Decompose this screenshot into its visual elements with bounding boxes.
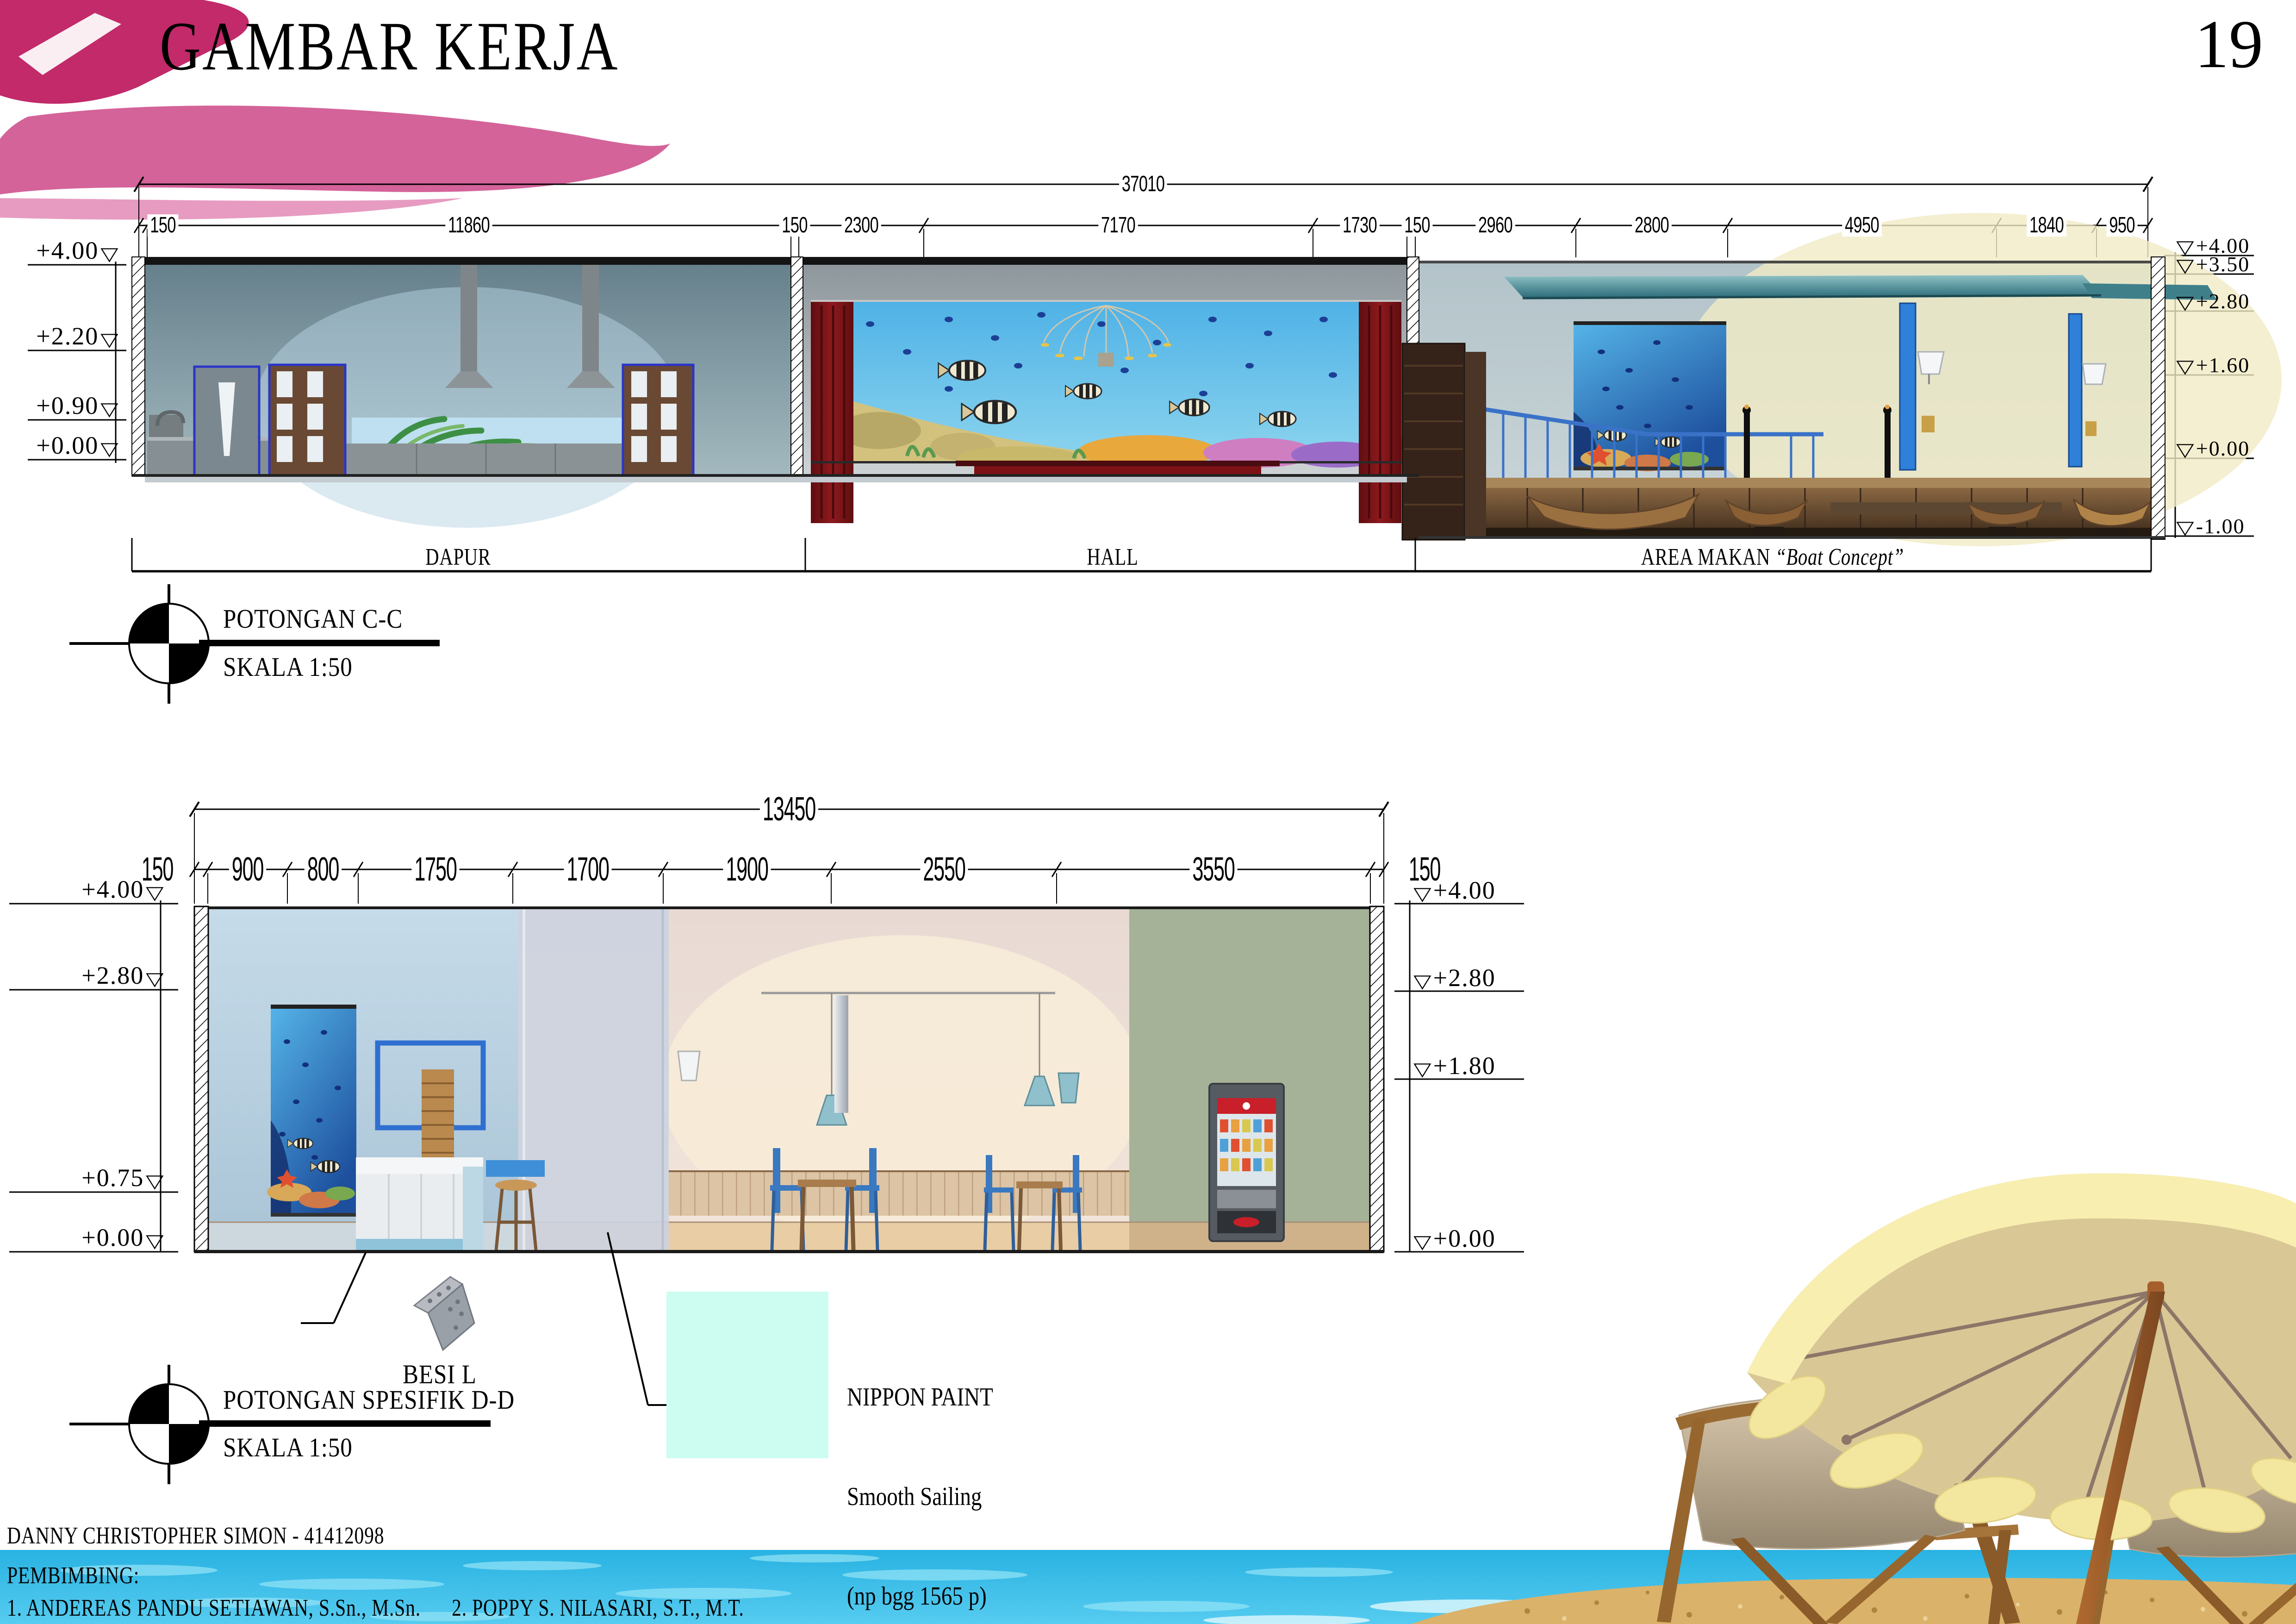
dd-dim-4: 1700 bbox=[564, 853, 611, 886]
dd-elev-left-1: +2.80▽ bbox=[9, 961, 162, 990]
cc-dim-3: 2300 bbox=[841, 214, 881, 237]
elev-value: +0.00 bbox=[36, 431, 99, 460]
paint-leader-line bbox=[608, 1232, 675, 1405]
cc-elev-right-5: ▽-1.00 bbox=[2178, 514, 2245, 538]
dd-elev-left-3: +0.00▽ bbox=[9, 1223, 162, 1252]
cc-kitchen-render bbox=[145, 265, 791, 528]
elev-value: +1.60 bbox=[2196, 353, 2250, 377]
besi-l-label: BESI L bbox=[403, 1361, 477, 1388]
elev-value: +4.00 bbox=[36, 236, 99, 265]
elev-value: +2.20 bbox=[36, 322, 99, 350]
cc-total-dim: 37010 bbox=[1119, 173, 1167, 195]
dd-dim-1: 900 bbox=[229, 853, 266, 886]
elevation-triangle-icon: ▽ bbox=[146, 882, 163, 904]
dd-caption-title: POTONGAN SPESIFIK D-D bbox=[223, 1387, 515, 1413]
dd-dim-3: 1750 bbox=[411, 853, 459, 886]
dd-dim-7: 3550 bbox=[1189, 853, 1237, 886]
elev-value: +0.00 bbox=[2196, 436, 2250, 461]
dd-aquarium-poster bbox=[267, 1005, 356, 1217]
dd-elev-left-2: +0.75▽ bbox=[9, 1163, 162, 1192]
cc-dim-9: 4950 bbox=[1842, 214, 1882, 237]
cc-hall-render bbox=[803, 265, 1425, 523]
angle-iron-icon bbox=[414, 1277, 474, 1350]
dd-right-wall bbox=[1370, 906, 1384, 1252]
elevation-triangle-icon: ▽ bbox=[2176, 356, 2194, 377]
cc-dim-0: 150 bbox=[147, 214, 178, 237]
supervisor-names: 1. ANDEREAS PANDU SETIAWAN, S.Sn., M.Sn.… bbox=[7, 1596, 744, 1620]
sheet-artwork bbox=[0, 0, 2296, 1624]
glass-column bbox=[518, 909, 669, 1250]
cc-left-wall bbox=[132, 257, 145, 476]
elevation-triangle-icon: ▽ bbox=[1413, 883, 1431, 905]
cc-elev-right-2: ▽+2.80 bbox=[2178, 289, 2250, 313]
elevation-triangle-icon: ▽ bbox=[146, 1171, 163, 1192]
dd-caption-scale: SKALA 1:50 bbox=[223, 1434, 353, 1461]
cc-elev-right-1: ▽+3.50 bbox=[2178, 252, 2250, 276]
wooden-screen bbox=[1402, 344, 1486, 540]
dd-elev-right-3: ▽+0.00 bbox=[1415, 1224, 1496, 1253]
elevation-triangle-icon: ▽ bbox=[2176, 517, 2194, 538]
kitchen-door-right bbox=[623, 365, 693, 476]
elev-value: -1.00 bbox=[2196, 514, 2245, 538]
nippon-line-1: NIPPON PAINT bbox=[847, 1381, 993, 1414]
cc-dim-7: 2960 bbox=[1475, 214, 1515, 237]
elevation-triangle-icon: ▽ bbox=[2176, 255, 2194, 276]
cc-elev-left-1: +2.20▽ bbox=[19, 322, 117, 350]
kitchen-door-left bbox=[194, 367, 259, 476]
elevation-triangle-icon: ▽ bbox=[146, 1230, 163, 1252]
cc-elev-left-3: +0.00▽ bbox=[19, 431, 117, 460]
cc-caption-scale: SKALA 1:50 bbox=[223, 654, 353, 681]
student-name: DANNY CHRISTOPHER SIMON - 41412098 bbox=[7, 1524, 384, 1548]
page-title: GAMBAR KERJA bbox=[160, 12, 619, 81]
dd-elev-right-0: ▽+4.00 bbox=[1415, 876, 1496, 905]
vending-machine bbox=[1209, 1084, 1284, 1241]
wooden-boat-platform bbox=[1481, 478, 2151, 538]
elevation-triangle-icon: ▽ bbox=[2176, 439, 2194, 461]
dd-dim-6: 2550 bbox=[920, 853, 968, 886]
elev-value: +2.80 bbox=[2196, 289, 2250, 313]
cc-elev-left-0: +4.00▽ bbox=[19, 236, 117, 265]
room-label-dapur: DAPUR bbox=[425, 545, 491, 569]
room-label-area-makan: AREA MAKAN “Boat Concept” bbox=[1641, 545, 1904, 569]
elev-value: +0.00 bbox=[1433, 1224, 1496, 1253]
cc-right-wall bbox=[2151, 257, 2165, 539]
cc-dim-1: 11860 bbox=[445, 214, 492, 237]
dd-dim-2: 800 bbox=[305, 853, 342, 886]
elevation-triangle-icon: ▽ bbox=[100, 244, 118, 265]
cc-elev-left-2: +0.90▽ bbox=[19, 391, 117, 420]
elev-value: +4.00 bbox=[81, 875, 144, 904]
besi-leader-line bbox=[301, 1253, 366, 1323]
room-label-hall: HALL bbox=[1087, 545, 1138, 569]
elevation-triangle-icon: ▽ bbox=[1413, 971, 1431, 992]
cc-dim-8: 2800 bbox=[1632, 214, 1672, 237]
dd-elev-right-2: ▽+1.80 bbox=[1415, 1051, 1496, 1080]
elev-value: +0.00 bbox=[81, 1223, 144, 1252]
cc-dim-11: 950 bbox=[2106, 214, 2137, 237]
cc-section-marker-icon bbox=[69, 584, 440, 704]
elev-value: +1.80 bbox=[1433, 1051, 1496, 1080]
elevation-triangle-icon: ▽ bbox=[146, 968, 163, 990]
cc-wall-dapur-hall bbox=[791, 257, 803, 476]
stage-steps bbox=[956, 461, 1280, 475]
elevation-triangle-icon: ▽ bbox=[1413, 1059, 1431, 1080]
elev-value: +0.75 bbox=[81, 1163, 144, 1192]
cc-dim-6: 150 bbox=[1401, 214, 1432, 237]
cc-dim-2: 150 bbox=[779, 214, 810, 237]
room-label-concept: “Boat Concept” bbox=[1775, 544, 1904, 570]
cc-caption-title: POTONGAN C-C bbox=[223, 606, 403, 632]
elevation-triangle-icon: ▽ bbox=[100, 438, 118, 460]
dd-elev-right-1: ▽+2.80 bbox=[1415, 963, 1496, 992]
dd-left-wall bbox=[194, 906, 208, 1252]
elev-value: +4.00 bbox=[1433, 876, 1496, 905]
dd-render bbox=[208, 906, 1370, 1252]
elev-value: +2.80 bbox=[81, 961, 144, 990]
elevation-triangle-icon: ▽ bbox=[1413, 1231, 1431, 1253]
elev-value: +3.50 bbox=[2196, 252, 2250, 276]
drawing-sheet: GAMBAR KERJA 19 37010 150 11860 150 2300… bbox=[0, 0, 2296, 1624]
elevation-triangle-icon: ▽ bbox=[100, 399, 118, 420]
cc-dim-10: 1840 bbox=[2027, 214, 2066, 237]
cc-elev-right-3: ▽+1.60 bbox=[2178, 353, 2250, 377]
paint-swatch bbox=[666, 1292, 828, 1458]
cc-elev-right-4: ▽+0.00 bbox=[2178, 436, 2250, 461]
blue-bar-ledge bbox=[486, 1160, 545, 1177]
room-label-text: AREA MAKAN bbox=[1641, 544, 1775, 570]
cc-dim-5: 1730 bbox=[1340, 214, 1380, 237]
dd-total-dim: 13450 bbox=[760, 793, 818, 826]
elev-value: +0.90 bbox=[36, 391, 99, 420]
elev-value: +2.80 bbox=[1433, 963, 1496, 992]
reception-counter bbox=[356, 1157, 483, 1252]
page-number: 19 bbox=[2195, 10, 2263, 79]
dd-dim-5: 1900 bbox=[723, 853, 771, 886]
nippon-paint-note: NIPPON PAINT Smooth Sailing (np bgg 1565… bbox=[847, 1315, 993, 1624]
supervisor-heading: PEMBIMBING: bbox=[7, 1564, 139, 1588]
elevation-triangle-icon: ▽ bbox=[100, 329, 118, 350]
nippon-line-2: Smooth Sailing bbox=[847, 1480, 993, 1514]
dd-elev-left-0: +4.00▽ bbox=[9, 875, 162, 904]
cc-dim-4: 7170 bbox=[1098, 214, 1138, 237]
nippon-line-3: (np bgg 1565 p) bbox=[847, 1580, 993, 1613]
elevation-triangle-icon: ▽ bbox=[2176, 292, 2194, 313]
kitchen-counter-mid bbox=[346, 443, 628, 476]
kitchen-door-double bbox=[269, 365, 345, 476]
